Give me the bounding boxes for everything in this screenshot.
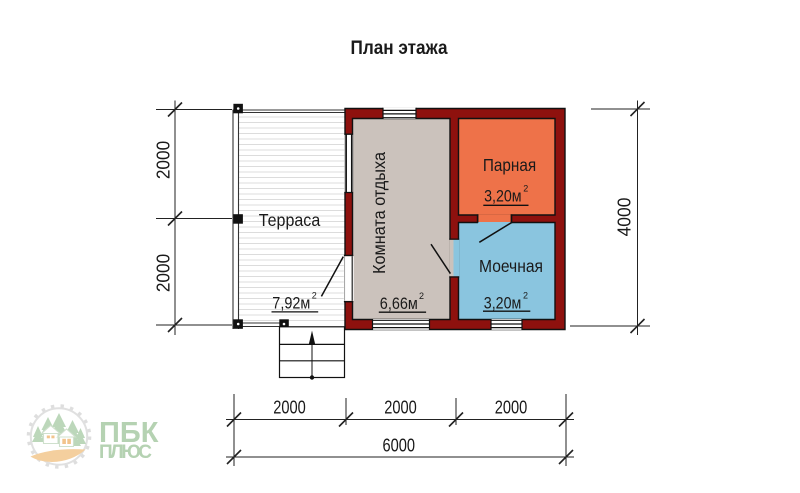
svg-text:6,66м: 6,66м (380, 295, 418, 313)
svg-text:Моечная: Моечная (479, 256, 543, 276)
svg-text:2000: 2000 (384, 396, 417, 417)
svg-text:План этажа: План этажа (351, 38, 448, 59)
svg-text:2: 2 (419, 291, 424, 301)
svg-text:6000: 6000 (382, 434, 415, 455)
svg-text:ПЛЮС: ПЛЮС (99, 442, 152, 463)
svg-text:2000: 2000 (273, 396, 306, 417)
svg-text:2: 2 (523, 290, 528, 300)
svg-text:2000: 2000 (152, 254, 173, 292)
svg-text:4000: 4000 (614, 198, 635, 237)
svg-text:3,20м: 3,20м (484, 294, 522, 312)
svg-text:Парная: Парная (483, 155, 536, 175)
svg-text:2000: 2000 (152, 141, 173, 179)
svg-text:Комната отдыха: Комната отдыха (369, 152, 389, 274)
svg-text:7,92м: 7,92м (272, 295, 310, 313)
svg-text:2000: 2000 (495, 396, 528, 417)
svg-text:Терраса: Терраса (259, 210, 321, 230)
svg-text:2: 2 (523, 183, 528, 193)
svg-text:3,20м: 3,20м (484, 187, 521, 205)
svg-text:2: 2 (312, 291, 317, 301)
